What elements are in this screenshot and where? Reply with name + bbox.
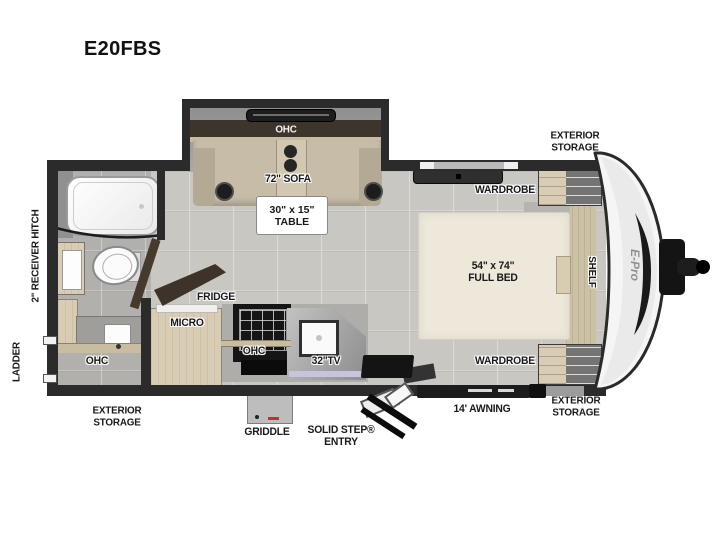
tv-label: 32"TV <box>312 355 341 367</box>
wardrobe-top-label: WARDROBE <box>475 184 535 196</box>
slideout-window <box>246 109 336 122</box>
model-title: E20FBS <box>84 38 161 61</box>
ladder-rung <box>43 374 57 383</box>
wardrobe-bottom-label: WARDROBE <box>475 355 535 367</box>
ohc-sofa-label: OHC <box>275 124 296 136</box>
brand-decal: E-Pro <box>628 249 642 281</box>
wall-bath-divider <box>141 298 151 390</box>
speaker-icon <box>364 182 383 201</box>
slideout-wall-left <box>182 99 190 171</box>
bath-side-cabinet <box>57 299 78 346</box>
sofa-label: 72" SOFA <box>265 173 311 185</box>
vanity <box>56 242 85 295</box>
shower-rod <box>52 222 167 246</box>
exterior-storage-top-label: EXTERIOR STORAGE <box>542 131 608 154</box>
floorplan: E20FBS <box>0 0 720 540</box>
wall-left <box>47 160 58 396</box>
hitch-ball <box>696 260 710 274</box>
dinette-table: 30" x 15" TABLE <box>256 196 328 235</box>
drain-icon <box>139 204 144 209</box>
exterior-storage-bottom-left-label: EXTERIOR STORAGE <box>84 406 150 429</box>
exterior-storage-bottom-right-label: EXTERIOR STORAGE <box>543 396 609 419</box>
bed-label: 54" x 74" FULL BED <box>468 260 517 284</box>
bath-counter <box>57 343 143 353</box>
fridge-label: FRIDGE <box>197 291 235 303</box>
awning-bar <box>417 385 530 398</box>
awning-label: 14' AWNING <box>453 403 510 415</box>
ladder-rung <box>43 336 57 345</box>
table-label: TABLE <box>275 216 309 228</box>
shelf-ledge <box>556 256 571 294</box>
speaker-icon <box>215 182 234 201</box>
bedroom-window <box>420 162 518 169</box>
slideout-wall-right <box>381 99 389 171</box>
ceiling-vent <box>413 169 503 184</box>
entry-label: SOLID STEP® ENTRY <box>307 424 374 448</box>
tv <box>299 320 339 357</box>
wall-shower <box>157 166 165 240</box>
ohc-kitchen-label: OHC <box>243 345 265 357</box>
slideout-wall-top <box>182 99 389 108</box>
ladder-label: LADDER <box>11 342 23 382</box>
cupholder-icon <box>284 145 297 158</box>
griddle-box <box>247 395 293 424</box>
micro-label: MICRO <box>170 317 204 329</box>
entry-bench <box>361 355 414 378</box>
faucet-icon <box>116 344 121 349</box>
table-size-label: 30" x 15" <box>270 204 315 216</box>
cupholder-icon <box>284 159 297 172</box>
ohc-bath-label: OHC <box>86 355 108 367</box>
stove-base <box>241 360 289 375</box>
led-accent-strip <box>289 371 365 377</box>
shelf-label: SHELF <box>585 256 597 287</box>
griddle-label: GRIDDLE <box>244 426 289 438</box>
sofa-arm-left <box>193 148 215 206</box>
receiver-hitch-label: 2" RECEIVER HITCH <box>30 209 42 302</box>
countertop-edge <box>156 304 218 313</box>
